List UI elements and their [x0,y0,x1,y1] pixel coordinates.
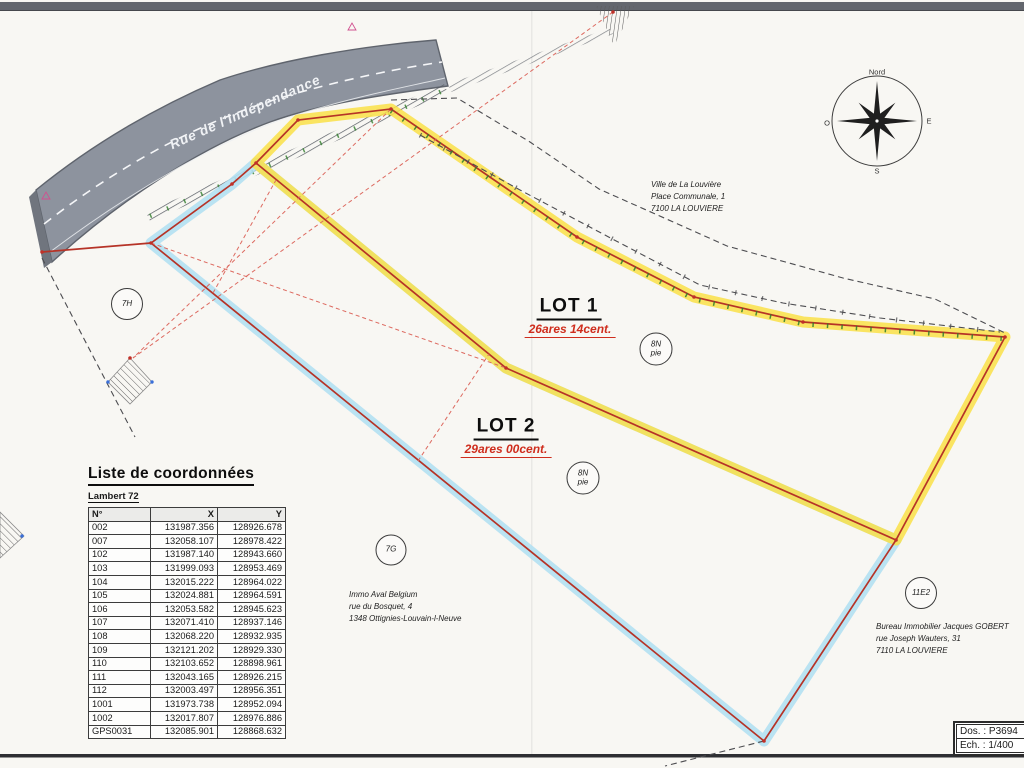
coordinates-subtitle: Lambert 72 [88,491,139,503]
cell-x-coordinate: 131987.356 [151,521,218,535]
table-row: 105 132024.881 128964.591 [89,589,286,603]
table-header-row: N° X Y [89,508,286,522]
cell-point-number: 111 [89,671,151,685]
coordinates-panel: Liste de coordonnées Lambert 72 N° X Y 0… [88,465,286,739]
table-row: 107 132071.410 128937.146 [89,616,286,630]
cell-x-coordinate: 132058.107 [151,535,218,549]
cell-y-coordinate: 128929.330 [218,643,286,657]
ref-line-south [665,741,764,766]
table-row: 002 131987.356 128926.678 [89,521,286,535]
dossier-number: Dos. : P3694 [957,725,1024,739]
cell-y-coordinate: 128926.215 [218,671,286,685]
table-row: 110 132103.652 128898.961 [89,657,286,671]
cell-x-coordinate: 131973.738 [151,698,218,712]
lot2-title: LOT 2 [474,416,539,441]
cell-point-number: 103 [89,562,151,576]
survey-plan-page: { "plan": { "road_name": "Rue de l'Indép… [0,0,1024,768]
scan-top-band [0,2,1024,10]
cell-y-coordinate: 128898.961 [218,657,286,671]
col-header-x: X [151,508,218,522]
cell-y-coordinate: 128932.935 [218,630,286,644]
cell-y-coordinate: 128945.623 [218,603,286,617]
title-block: Dos. : P3694 Ech. : 1/400 [953,721,1024,756]
cell-y-coordinate: 128926.678 [218,521,286,535]
road [29,40,448,268]
cell-y-coordinate: 128937.146 [218,616,286,630]
building-corner-002 [108,358,152,404]
cell-point-number: GPS0031 [89,725,151,739]
road-surface [36,40,448,262]
cell-x-coordinate: 132015.222 [151,575,218,589]
cell-x-coordinate: 132068.220 [151,630,218,644]
lot2-area: 29ares 00cent. [461,442,552,458]
lot1-area: 26ares 14cent. [525,322,616,338]
compass-rose [832,76,922,166]
table-row: 106 132053.582 128945.623 [89,603,286,617]
cell-y-coordinate: 128868.632 [218,725,286,739]
cell-point-number: 109 [89,643,151,657]
cell-y-coordinate: 128953.469 [218,562,286,576]
cell-x-coordinate: 132071.410 [151,616,218,630]
table-row: 112 132003.497 128956.351 [89,684,286,698]
hedge-ticks [391,111,1005,339]
cell-point-number: 1001 [89,698,151,712]
table-row: 108 132068.220 128932.935 [89,630,286,644]
table-row: 007 132058.107 128978.422 [89,535,286,549]
cell-x-coordinate: 132024.881 [151,589,218,603]
cell-point-number: 106 [89,603,151,617]
cell-y-coordinate: 128964.591 [218,589,286,603]
cell-x-coordinate: 132085.901 [151,725,218,739]
cell-x-coordinate: 131987.140 [151,548,218,562]
cell-point-number: 002 [89,521,151,535]
coordinates-table: N° X Y 002 131987.356 128926.678 007 132… [88,507,286,739]
cell-x-coordinate: 132003.497 [151,684,218,698]
scan-bottom-band [0,754,1024,758]
ref-line-west [42,258,135,437]
cell-y-coordinate: 128976.886 [218,711,286,725]
cell-x-coordinate: 131999.093 [151,562,218,576]
table-row: 103 131999.093 128953.469 [89,562,286,576]
cell-point-number: 102 [89,548,151,562]
cell-y-coordinate: 128943.660 [218,548,286,562]
cell-point-number: 1002 [89,711,151,725]
cell-x-coordinate: 132121.202 [151,643,218,657]
lot1-title: LOT 1 [537,296,602,321]
cell-y-coordinate: 128964.022 [218,575,286,589]
table-row: 104 132015.222 128964.022 [89,575,286,589]
table-row: 111 132043.165 128926.215 [89,671,286,685]
cell-x-coordinate: 132043.165 [151,671,218,685]
cell-point-number: 104 [89,575,151,589]
cell-y-coordinate: 128952.094 [218,698,286,712]
cell-y-coordinate: 128956.351 [218,684,286,698]
table-row: 1002 132017.807 128976.886 [89,711,286,725]
building-corner-left-edge [0,512,24,558]
cell-x-coordinate: 132053.582 [151,603,218,617]
cell-y-coordinate: 128978.422 [218,535,286,549]
col-header-n: N° [89,508,151,522]
table-row: GPS0031 132085.901 128868.632 [89,725,286,739]
tie-102-111 [151,243,506,368]
cell-point-number: 108 [89,630,151,644]
cell-point-number: 110 [89,657,151,671]
cell-point-number: 112 [89,684,151,698]
table-row: 1001 131973.738 128952.094 [89,698,286,712]
cell-x-coordinate: 132103.652 [151,657,218,671]
lot1-yellow-band [256,109,1005,540]
col-header-y: Y [218,508,286,522]
embankment-hatch-extension [448,28,613,92]
cell-point-number: 105 [89,589,151,603]
coordinates-title: Liste de coordonnées [88,465,254,486]
cell-x-coordinate: 132017.807 [151,711,218,725]
scale-value: Ech. : 1/400 [957,739,1024,752]
cell-point-number: 007 [89,535,151,549]
lot-divider [256,163,896,540]
table-row: 109 132121.202 128929.330 [89,643,286,657]
cell-point-number: 107 [89,616,151,630]
table-row: 102 131987.140 128943.660 [89,548,286,562]
building-corner-007 [596,6,634,46]
